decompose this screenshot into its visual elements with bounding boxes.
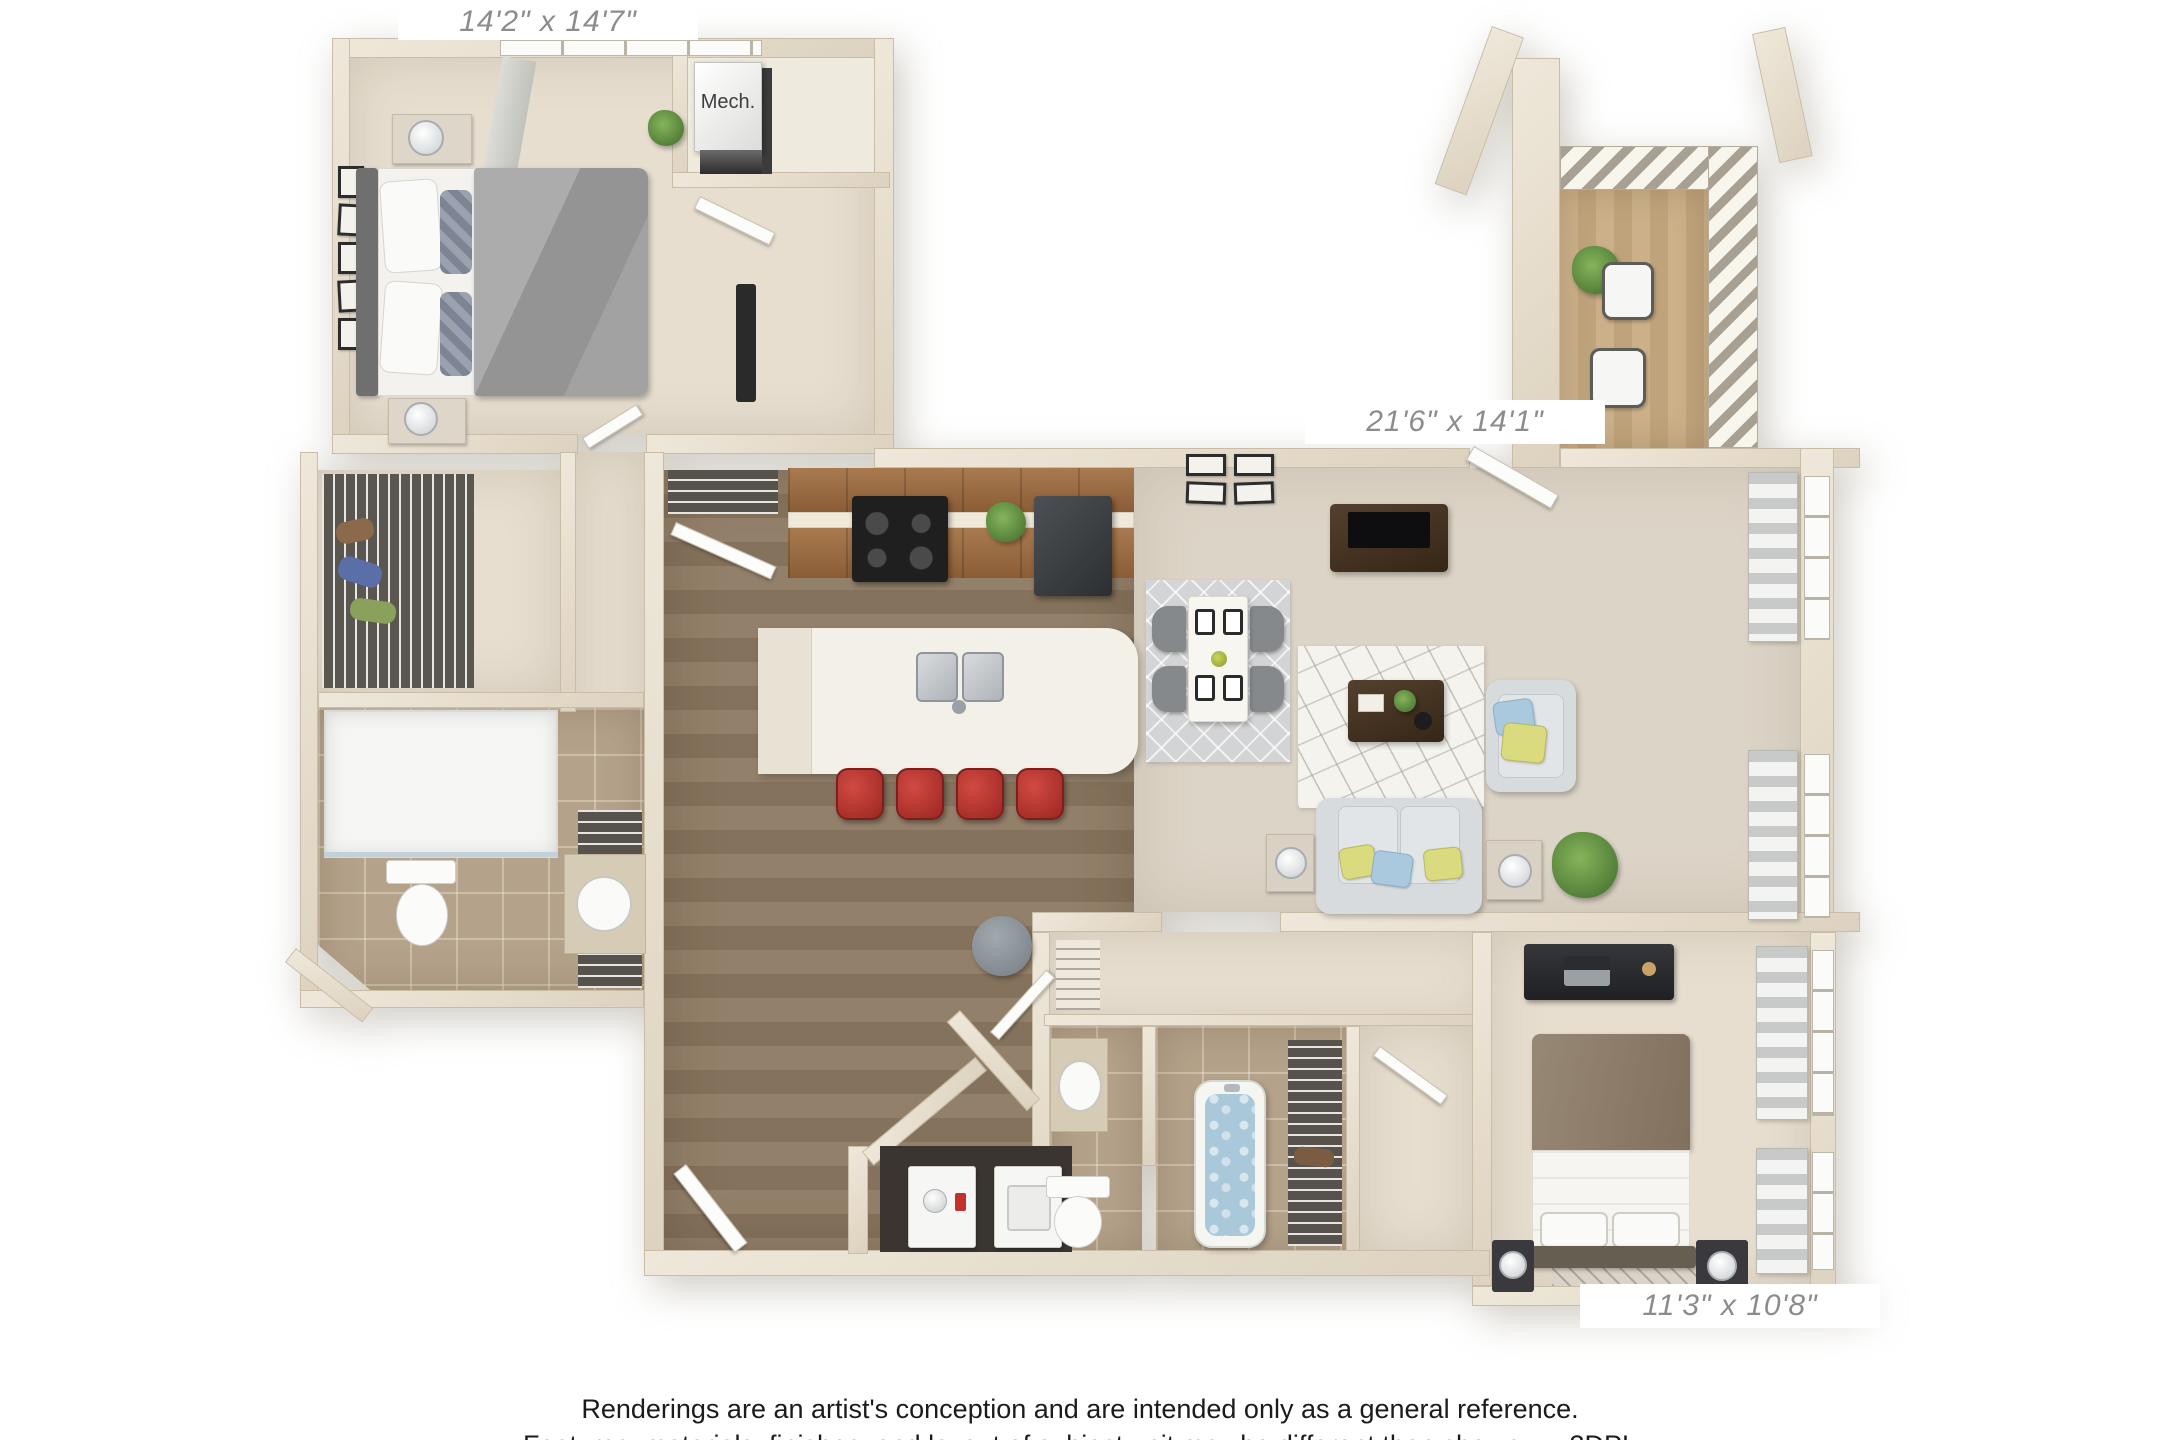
kitchen-plant xyxy=(986,502,1026,542)
sofa-lamp-right xyxy=(1498,854,1532,888)
kitchen-wall-left xyxy=(644,452,664,1274)
balcony-chair-1 xyxy=(1602,262,1654,320)
bedroom2-wall-left xyxy=(1472,932,1492,1286)
bedroom2-headboard xyxy=(1526,1246,1696,1268)
bar-stool-1 xyxy=(836,768,884,820)
balcony-beam-right xyxy=(1752,27,1813,163)
placemat-2 xyxy=(1223,609,1243,635)
bedroom2-blanket xyxy=(1532,1034,1690,1150)
armchair xyxy=(1486,680,1576,792)
washer-power-switch xyxy=(955,1193,966,1211)
bathtub-faucet xyxy=(1224,1084,1240,1092)
bedroom2-dimension-label: 11'3" x 10'8" xyxy=(1580,1284,1880,1328)
laptop xyxy=(1564,956,1610,986)
dining-centerpiece xyxy=(1211,651,1227,667)
living-window-shade-bottom xyxy=(1748,750,1798,920)
bedroom1-plant xyxy=(648,110,684,146)
bedroom2-window-top xyxy=(1812,950,1834,1116)
living-wall-art-1 xyxy=(1186,454,1226,476)
walkin-closet-shelving xyxy=(322,474,474,688)
sofa-lamp-left xyxy=(1275,847,1307,879)
living-window-shade-top xyxy=(1748,472,1798,642)
sofa-side-table-left xyxy=(1266,834,1314,892)
floor-plan-rendering: Mech. xyxy=(0,0,2160,1440)
mech-closet-label: Mech. xyxy=(695,91,761,113)
kitchen-island-bar-lip xyxy=(758,628,812,774)
closet-hall-divider xyxy=(560,452,576,712)
desk-mug xyxy=(1642,962,1656,976)
bar-stool-2 xyxy=(896,768,944,820)
kitchen-sink-basin-left xyxy=(916,652,958,702)
bedroom2-closet-area-floor xyxy=(1360,1026,1472,1252)
sofa-pillow-yellow-2 xyxy=(1422,846,1463,882)
dining-chair-3 xyxy=(1250,606,1284,652)
bedroom2-desk xyxy=(1524,944,1674,1000)
watermark-fragment: 3DPL xyxy=(1570,1430,1638,1440)
sofa-side-table-right xyxy=(1486,840,1542,900)
balcony-chair-2 xyxy=(1590,348,1646,408)
coffee-table xyxy=(1348,680,1444,742)
kitchen-faucet xyxy=(952,700,966,714)
floor-plan-stage: Mech. xyxy=(0,0,2160,1440)
dining-chair-2 xyxy=(1152,666,1186,712)
disclaimer-line-1-text: Renderings are an artist's conception an… xyxy=(581,1394,1578,1424)
sofa-pillow-blue-1 xyxy=(1370,849,1414,888)
bath2-hall-floor xyxy=(1044,932,1490,1026)
toilet1-bowl xyxy=(396,884,448,946)
coffee-table-book xyxy=(1358,694,1384,712)
washer-knob xyxy=(923,1189,947,1213)
bedroom2-window-shade-top xyxy=(1756,946,1808,1120)
bedroom2-nightstand-left xyxy=(1492,1240,1534,1292)
bedroom2-lamp-right xyxy=(1707,1251,1737,1281)
toilet2-tank xyxy=(1046,1176,1110,1198)
bar-stool-4 xyxy=(1016,768,1064,820)
bedroom1-accent-pillow-2 xyxy=(440,292,472,376)
laundry-hamper xyxy=(972,916,1032,976)
living-window-bottom xyxy=(1804,754,1830,918)
bedroom1-lamp-top xyxy=(408,120,444,156)
living-wall-art-2 xyxy=(1234,454,1274,476)
placemat-3 xyxy=(1195,675,1215,701)
living-plant xyxy=(1552,832,1618,898)
bedroom2-window-bottom xyxy=(1812,1152,1834,1270)
linen-closet xyxy=(1056,940,1100,1010)
shower-glass xyxy=(324,852,558,857)
shower xyxy=(324,710,558,858)
bedroom1-wall-bottom-right xyxy=(646,434,894,454)
toilet1-tank xyxy=(386,860,456,884)
great-room-wall-top-west xyxy=(874,448,1470,468)
bedroom1-accent-pillow-1 xyxy=(440,190,472,274)
bedroom1-duvet xyxy=(474,168,648,396)
tv-screen xyxy=(1348,512,1430,548)
south-exterior-wall xyxy=(644,1250,1490,1276)
kitchen-sink-basin-right xyxy=(962,652,1004,702)
placemat-4 xyxy=(1223,675,1243,701)
bedroom2-reach-in-closet xyxy=(1288,1040,1342,1246)
bedroom2-lamp-left xyxy=(1499,1251,1527,1279)
bathtub xyxy=(1194,1080,1266,1248)
bathtub-water xyxy=(1205,1094,1255,1236)
living-wall-art-3 xyxy=(1186,481,1227,504)
refrigerator xyxy=(1034,496,1112,596)
bathroom1-sink xyxy=(576,876,632,932)
water-heater-base xyxy=(700,150,762,174)
bedroom1-pillow-2 xyxy=(379,280,443,376)
disclaimer-line-2-text: Features, materials, finishes, and layou… xyxy=(523,1430,1528,1440)
disclaimer-line-2: Features, materials, finishes, and layou… xyxy=(0,1428,2160,1440)
bath2-closet-divider xyxy=(1346,1026,1360,1252)
dining-table xyxy=(1188,596,1248,722)
entry-nook-wall-vertical xyxy=(848,1146,868,1254)
living-window-top xyxy=(1804,476,1830,640)
disclaimer-line-1: Renderings are an artist's conception an… xyxy=(0,1392,2160,1426)
sofa xyxy=(1316,798,1482,914)
armchair-pillow-yellow xyxy=(1500,722,1548,764)
bathroom2-sink xyxy=(1058,1060,1102,1112)
living-wall-art-4 xyxy=(1234,481,1275,504)
bedroom2-pillow-2 xyxy=(1612,1212,1680,1248)
bedroom1-lamp-bottom xyxy=(404,402,438,436)
water-heater-unit: Mech. xyxy=(694,62,762,152)
bedroom1-window xyxy=(500,40,762,56)
bedroom1-dimension-label: 14'2" x 14'7" xyxy=(398,0,698,40)
mech-closet-wall-bottom xyxy=(672,172,890,188)
bedroom1-headboard xyxy=(356,168,378,396)
west-wing-wall-left xyxy=(300,452,318,1008)
washer xyxy=(908,1166,976,1248)
closet-bath-divider xyxy=(318,692,644,708)
dryer-door xyxy=(1007,1185,1051,1231)
bath2-vest-divider xyxy=(1142,1026,1156,1166)
living-dining-dimension-label: 21'6" x 14'1" xyxy=(1305,400,1605,444)
bedroom2-window-shade-bottom xyxy=(1756,1148,1808,1274)
balcony-beam-left xyxy=(1435,26,1524,195)
dining-chair-1 xyxy=(1152,606,1186,652)
bedroom1-pillow-1 xyxy=(379,178,443,274)
coffee-table-plant xyxy=(1394,690,1416,712)
dining-chair-4 xyxy=(1250,666,1284,712)
bar-stool-3 xyxy=(956,768,1004,820)
bedroom2-pillow-1 xyxy=(1540,1212,1608,1248)
balcony-railing-right xyxy=(1708,146,1758,448)
coffee-table-bowl xyxy=(1414,712,1432,730)
tv-console xyxy=(1330,504,1448,572)
bedroom1-wall-right xyxy=(874,38,894,454)
bath2-shelf-divider xyxy=(1044,1014,1490,1026)
living-wall-bottom-west xyxy=(1032,912,1162,932)
pantry-shelf xyxy=(668,470,778,514)
placemat-1 xyxy=(1195,609,1215,635)
toilet2-bowl xyxy=(1054,1196,1102,1248)
bedroom1-dresser xyxy=(736,284,756,402)
stove xyxy=(852,496,948,582)
